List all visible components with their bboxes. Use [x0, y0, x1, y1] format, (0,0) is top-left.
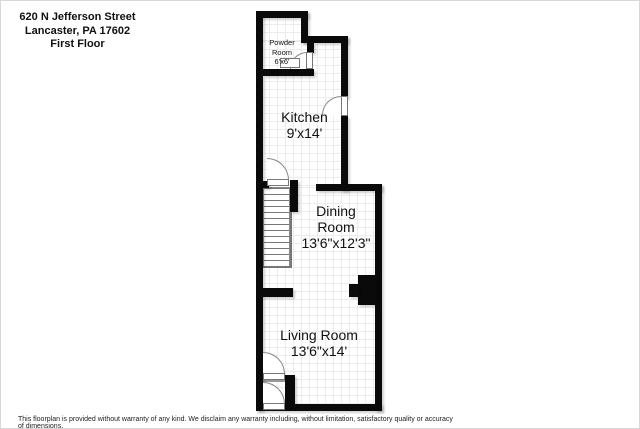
powder-room-name-line1: Powder: [258, 38, 306, 48]
address-line2: Lancaster, PA 17602: [15, 25, 140, 39]
kitchen-label: Kitchen 9'x14': [261, 109, 348, 141]
dining-room-dims: 13'6"x12'3": [284, 235, 388, 251]
wall-powder-bottom: [263, 69, 314, 76]
floor-title: First Floor: [15, 38, 140, 52]
floorplan-page: 620 N Jefferson Street Lancaster, PA 176…: [0, 0, 640, 429]
chimney-main: [358, 275, 376, 305]
living-room-label: Living Room 13'6"x14': [259, 327, 379, 359]
kitchen-dims: 9'x14': [261, 125, 348, 141]
stairs-door-leaf: [267, 179, 289, 186]
dining-room-name-line1: Dining: [284, 203, 388, 219]
entry-outer-door-leaf: [263, 403, 285, 410]
entry-inner-door-leaf: [263, 373, 285, 380]
wall-dining-living-stub: [256, 288, 293, 297]
stair-end-line: [263, 266, 291, 268]
address-line1: 620 N Jefferson Street: [15, 11, 140, 25]
powder-room-name-line2: Room: [258, 48, 306, 58]
dining-room-label: Dining Room 13'6"x12'3": [284, 203, 388, 251]
kitchen-name: Kitchen: [261, 109, 348, 125]
powder-room-dims: 6'x6': [258, 57, 306, 67]
powder-room-label: Powder Room 6'x6': [258, 38, 306, 67]
address-header: 620 N Jefferson Street Lancaster, PA 176…: [15, 11, 140, 52]
dining-room-name-line2: Room: [284, 219, 388, 235]
living-room-name: Living Room: [259, 327, 379, 343]
chimney-tab: [349, 284, 359, 297]
disclaimer-text: This floorplan is provided without warra…: [18, 416, 458, 429]
powder-room-door-leaf: [306, 52, 313, 69]
wall-kitchen-dining-step: [316, 184, 382, 191]
wall-kitchen-right-upper: [341, 36, 348, 98]
living-room-dims: 13'6"x14': [259, 343, 379, 359]
wall-vestibule: [285, 375, 295, 408]
